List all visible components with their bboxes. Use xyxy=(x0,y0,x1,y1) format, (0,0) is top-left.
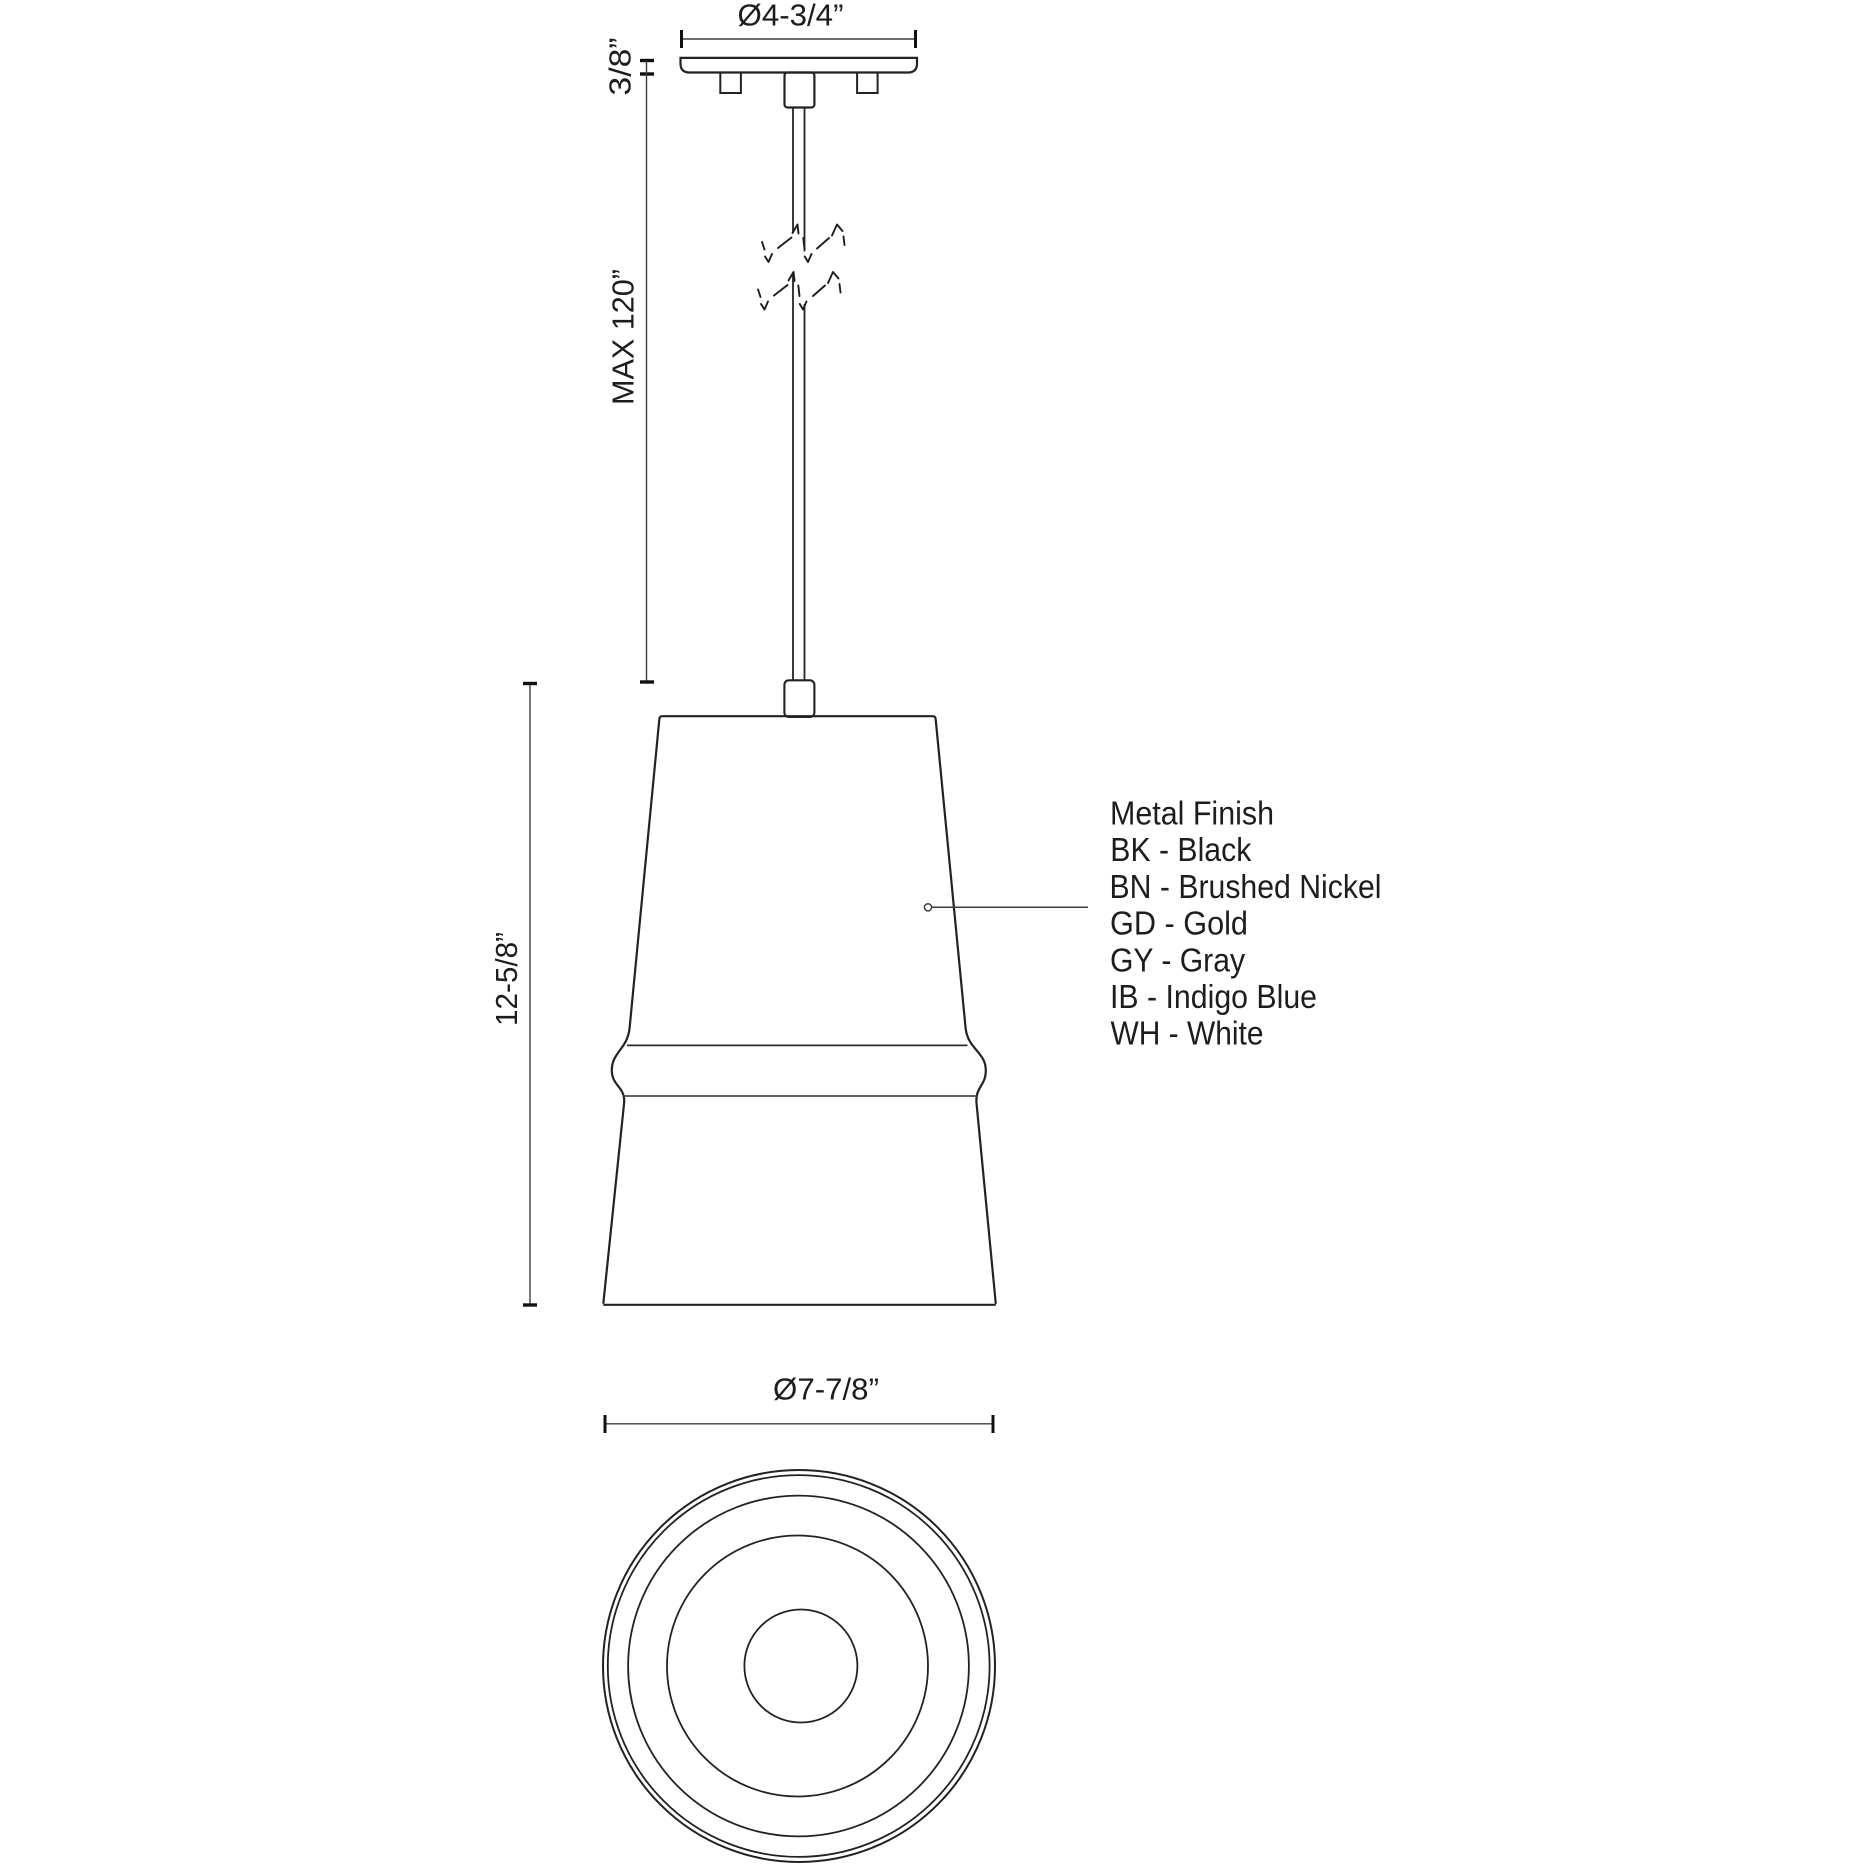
svg-text:12-5/8”: 12-5/8” xyxy=(489,932,524,1026)
svg-text:Ø4-3/4”: Ø4-3/4” xyxy=(738,0,844,32)
svg-text:Ø7-7/8”: Ø7-7/8” xyxy=(773,1372,879,1407)
svg-text:MAX 120”: MAX 120” xyxy=(606,269,641,405)
svg-text:GD - Gold: GD - Gold xyxy=(1110,905,1248,942)
svg-text:Metal Finish: Metal Finish xyxy=(1110,795,1274,832)
svg-text:BK - Black: BK - Black xyxy=(1110,831,1251,868)
svg-text:BN - Brushed Nickel: BN - Brushed Nickel xyxy=(1110,868,1382,905)
svg-text:GY - Gray: GY - Gray xyxy=(1110,941,1245,978)
svg-text:3/8”: 3/8” xyxy=(603,38,638,96)
svg-text:IB - Indigo Blue: IB - Indigo Blue xyxy=(1110,978,1317,1015)
svg-text:WH - White: WH - White xyxy=(1111,1015,1264,1052)
